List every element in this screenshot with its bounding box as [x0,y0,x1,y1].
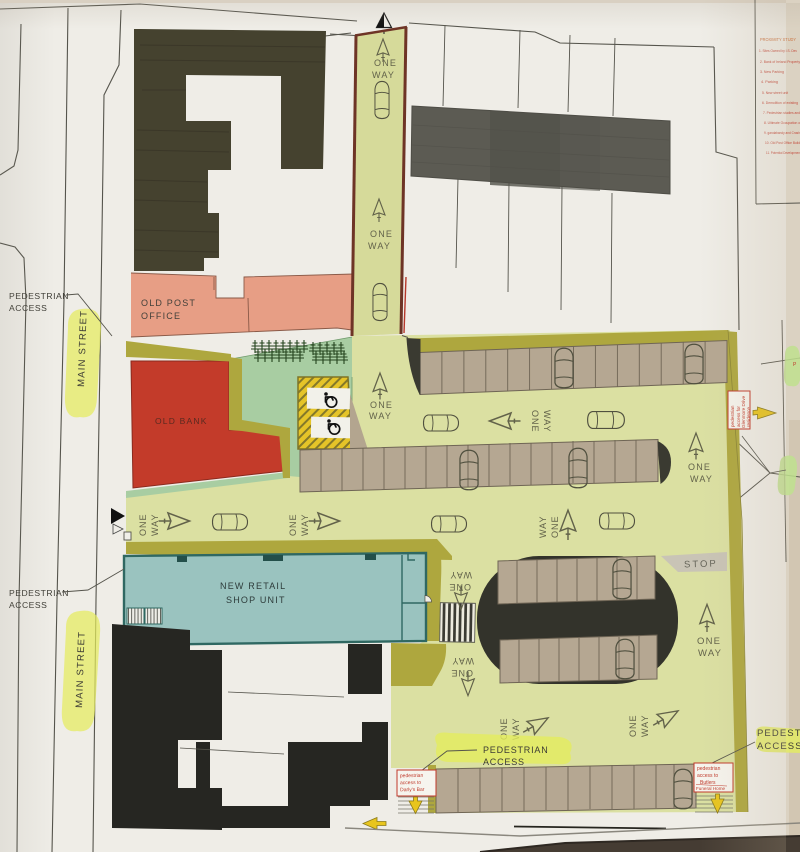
svg-text:pedestrian: pedestrian [400,773,424,779]
svg-text:NEW RETAIL: NEW RETAIL [220,581,286,591]
svg-text:WAY: WAY [372,70,395,80]
svg-text:ONE: ONE [138,513,148,536]
svg-text:ONE: ONE [628,714,638,737]
svg-text:WAY: WAY [640,715,650,738]
svg-text:ONE: ONE [530,410,540,433]
svg-text:WAY: WAY [542,410,552,433]
svg-text:ONE: ONE [550,515,560,538]
svg-text:PEDESTRIAN: PEDESTRIAN [483,745,549,755]
svg-text:OLD BANK: OLD BANK [155,416,208,426]
svg-text:WAY: WAY [369,411,392,421]
svg-text:ONE: ONE [370,229,393,239]
svg-text:ONE: ONE [288,513,298,536]
svg-text:ONE: ONE [374,58,397,68]
svg-text:SHOP UNIT: SHOP UNIT [226,595,286,605]
svg-text:access to: access to [400,780,421,786]
svg-text:OFFICE: OFFICE [141,311,181,321]
svg-text:WAY: WAY [452,656,475,666]
svg-text:Darly's Bar: Darly's Bar [400,787,425,793]
svg-text:ONE: ONE [370,400,393,410]
svg-text:WAY: WAY [538,516,548,539]
svg-text:WAY: WAY [300,514,310,537]
svg-text:ACCESS: ACCESS [483,757,525,767]
svg-text:OLD POST: OLD POST [141,298,196,308]
svg-text:WAY: WAY [450,570,473,580]
svg-text:WAY: WAY [368,241,391,251]
svg-text:WAY: WAY [150,514,160,537]
